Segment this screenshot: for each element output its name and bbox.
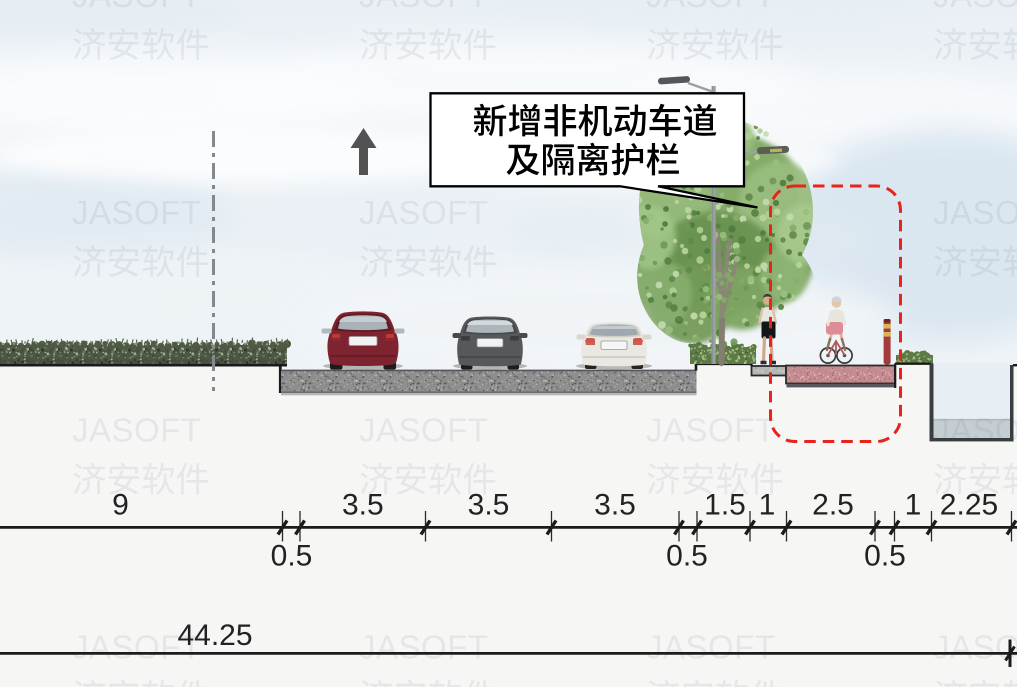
svg-text:2.25: 2.25 (940, 489, 998, 522)
svg-text:44.25: 44.25 (177, 619, 252, 652)
svg-text:3.5: 3.5 (594, 489, 636, 522)
svg-text:2.5: 2.5 (812, 489, 854, 522)
svg-text:1.5: 1.5 (704, 489, 746, 522)
svg-text:3.5: 3.5 (468, 489, 510, 522)
svg-text:1: 1 (905, 489, 922, 522)
svg-text:0.5: 0.5 (864, 540, 906, 573)
svg-text:9: 9 (112, 489, 129, 522)
svg-text:1: 1 (759, 489, 776, 522)
svg-text:0.5: 0.5 (666, 540, 708, 573)
svg-text:0.5: 0.5 (271, 540, 313, 573)
svg-text:3.5: 3.5 (342, 489, 384, 522)
